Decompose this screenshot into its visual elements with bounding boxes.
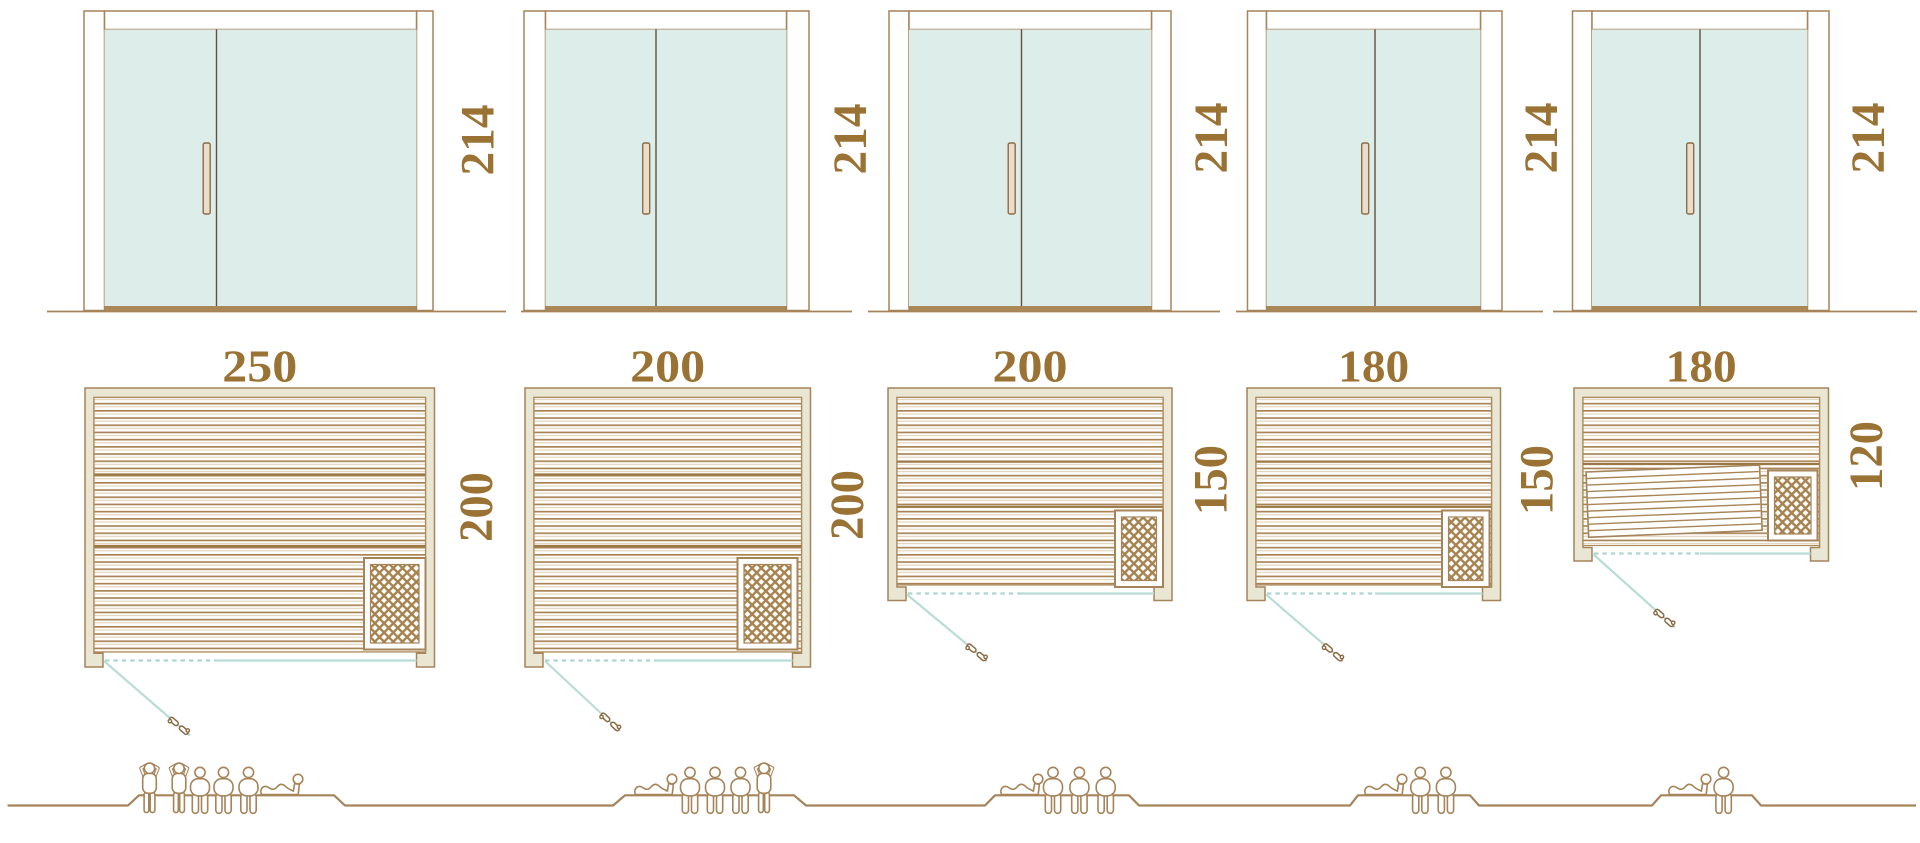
svg-text:180: 180 <box>1338 341 1409 392</box>
svg-text:200: 200 <box>821 470 874 540</box>
svg-text:120: 120 <box>1840 421 1893 491</box>
svg-text:150: 150 <box>1185 445 1238 515</box>
svg-text:200: 200 <box>630 341 705 392</box>
svg-text:150: 150 <box>1511 445 1564 515</box>
svg-text:250: 250 <box>222 341 297 392</box>
svg-text:180: 180 <box>1666 341 1737 392</box>
svg-text:214: 214 <box>1842 103 1895 174</box>
svg-text:214: 214 <box>1185 103 1238 174</box>
svg-text:214: 214 <box>1515 103 1568 174</box>
svg-text:200: 200 <box>993 341 1068 392</box>
svg-text:200: 200 <box>450 472 503 542</box>
svg-text:214: 214 <box>452 105 505 176</box>
svg-text:214: 214 <box>824 104 877 175</box>
